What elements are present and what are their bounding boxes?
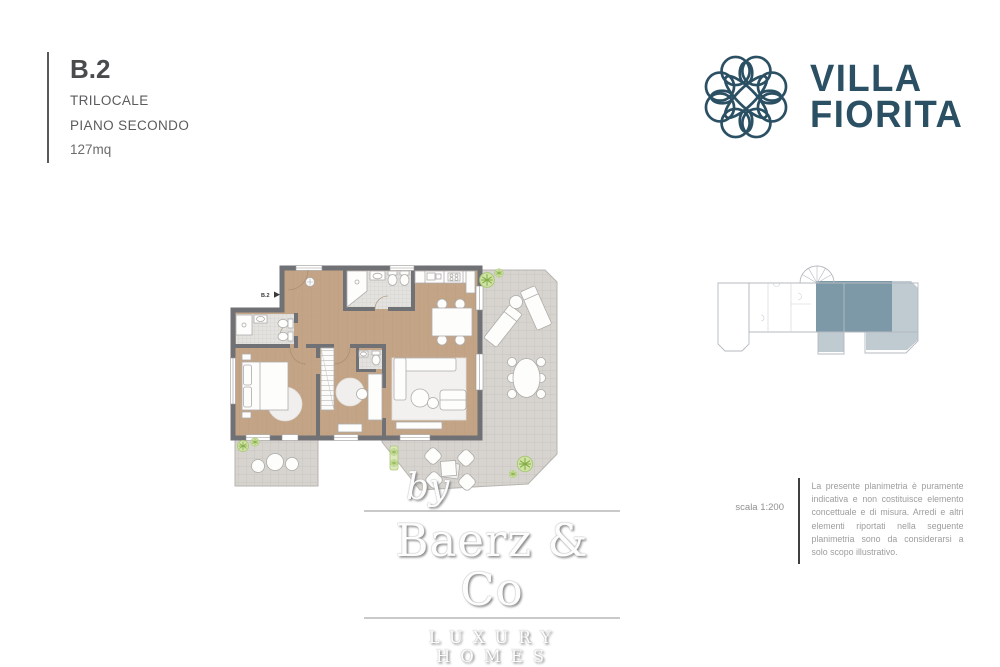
brochure-page: B.2 TRILOCALE PIANO SECONDO 127mq VILLA … (0, 0, 1000, 667)
scale-label: scala 1:200 (720, 478, 784, 564)
villa-fiorita-logo: VILLA FIORITA (694, 45, 970, 149)
notes-divider (798, 478, 800, 564)
unit-floor: PIANO SECONDO (70, 119, 189, 133)
plan-notes: scala 1:200 La presente planimetria è pu… (720, 478, 964, 564)
building-minimap (706, 260, 932, 366)
entrance-label: B.2 (261, 292, 280, 300)
disclaimer-text: La presente planimetria è puramente indi… (812, 480, 964, 564)
living-room (392, 358, 466, 429)
wardrobe (321, 348, 334, 410)
watermark-rule-top (364, 510, 620, 512)
baerz-watermark: by Baerz & Co LUXURY HOMES (364, 468, 620, 667)
logo-line2: FIORITA (810, 97, 963, 133)
flower-knot-icon (694, 45, 798, 149)
hall-lamp (306, 278, 315, 287)
watermark-brand: Baerz & Co (364, 516, 620, 615)
logo-line1: VILLA (810, 61, 963, 97)
watermark-by: by (406, 468, 620, 508)
entrance-unit-label: B.2 (261, 293, 270, 299)
watermark-rule-middle (364, 617, 620, 619)
minimap-highlight (816, 281, 918, 352)
logo-wordmark: VILLA FIORITA (810, 61, 963, 133)
watermark-tagline: LUXURY HOMES (370, 628, 620, 666)
unit-area: 127mq (70, 143, 189, 157)
unit-type: TRILOCALE (70, 94, 189, 108)
unit-header: B.2 TRILOCALE PIANO SECONDO 127mq (47, 52, 189, 163)
unit-code: B.2 (70, 56, 189, 82)
entrance-arrow-icon (274, 292, 280, 298)
